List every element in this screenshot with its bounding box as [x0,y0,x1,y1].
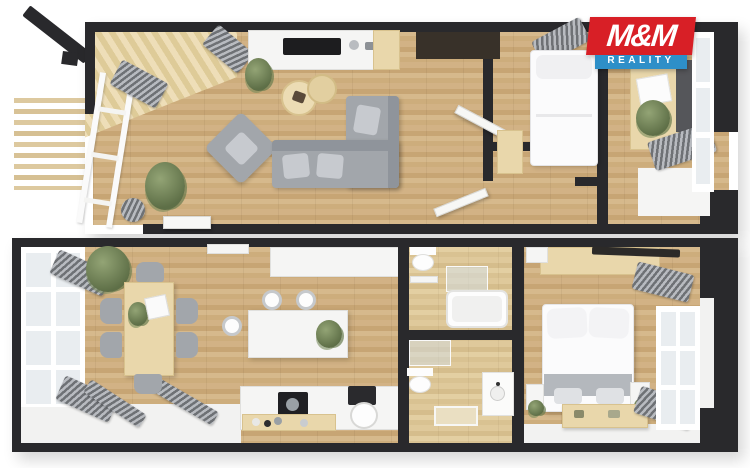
toilet-tank [407,368,433,376]
bar-stool [222,316,242,336]
logo-text-mm: M&M [605,18,677,54]
bench-decor [608,410,620,418]
wardrobe-dark [416,32,500,59]
window-pane [661,351,676,385]
bottle [252,418,260,426]
wall-kitchen-bath [398,247,409,443]
dining-table [124,282,174,376]
dining-chair [100,298,122,324]
plant [145,162,185,210]
dining-chair [136,262,164,282]
window-pane [696,38,710,82]
kitchen-cabinet [373,30,400,70]
floorplan-render: M&M REALITY [0,0,750,468]
foot-pillow [596,388,624,404]
bed-duvet-fold [536,114,592,117]
window-pane [696,138,710,184]
window-pane [26,253,51,287]
bath-mat [434,406,478,426]
outer-wall-right [714,22,738,132]
bed-pillow [536,55,592,79]
pot [286,398,299,411]
wall-stub [575,177,597,186]
mm-reality-logo: M&M REALITY [588,17,694,69]
pergola-post [61,51,79,66]
window-pane [661,390,676,424]
bed-pillow [546,307,588,339]
wall-vent [207,244,249,254]
railing-rung [91,152,119,161]
railing-rung [84,197,112,206]
sofa-pillow [316,153,344,179]
counter-appliance [349,40,359,50]
shower-glass [446,266,488,292]
outer-sill [700,298,714,408]
bed-pillow [588,307,630,339]
hall-cabinet [497,130,523,174]
window-pane [26,331,51,365]
logo-text-reality: REALITY [607,55,674,66]
window-pane [680,390,695,424]
kitchen-sink [350,402,378,429]
shelf-box [526,247,548,263]
foot-pillow [554,388,582,404]
cooktop [283,38,341,55]
toilet [412,254,434,271]
window-pane [56,331,80,365]
bench-decor [574,410,584,418]
window-pane [26,292,51,326]
bar-stool [262,290,282,310]
dining-chair [176,332,198,358]
window-pane [661,312,676,346]
railing-rung [98,106,126,115]
window-pane [696,88,710,132]
window-pane [680,351,695,385]
dining-chair [100,332,122,358]
window-pane [26,370,51,404]
kitchen-upper-cabinets [270,247,404,277]
window-pane [680,312,695,346]
plant [528,400,544,416]
island-plant [316,320,342,348]
bottle [274,417,282,425]
shower-glass [409,340,451,366]
logo-red-box: M&M [586,17,696,55]
washbasin [490,386,505,401]
dining-chair [176,298,198,324]
lower-apartment-unit [12,238,738,452]
pergola-beam [22,5,91,63]
bath-shelf [410,276,438,283]
table-decor [144,294,170,320]
bottle [264,420,271,427]
bathtub-basin [452,296,502,322]
bottle [300,419,308,427]
bar-stool [296,290,316,310]
window-pane [56,292,80,326]
outer-wall-bottom [143,224,738,234]
sofa-pillow [353,104,381,136]
toilet [409,376,431,393]
window [692,32,714,192]
ribbed-planter [121,198,145,222]
outer-wall-left [85,22,95,114]
wall-between-baths [398,330,518,340]
sofa-backrest [388,96,399,188]
plant [636,100,670,136]
sofa-pillow [282,153,310,180]
window [656,306,700,430]
faucet [496,382,500,386]
plant [245,58,272,91]
sofa-backrest [272,140,399,151]
coffee-table [307,74,337,104]
doormat [163,216,211,229]
dining-chair [134,374,162,394]
